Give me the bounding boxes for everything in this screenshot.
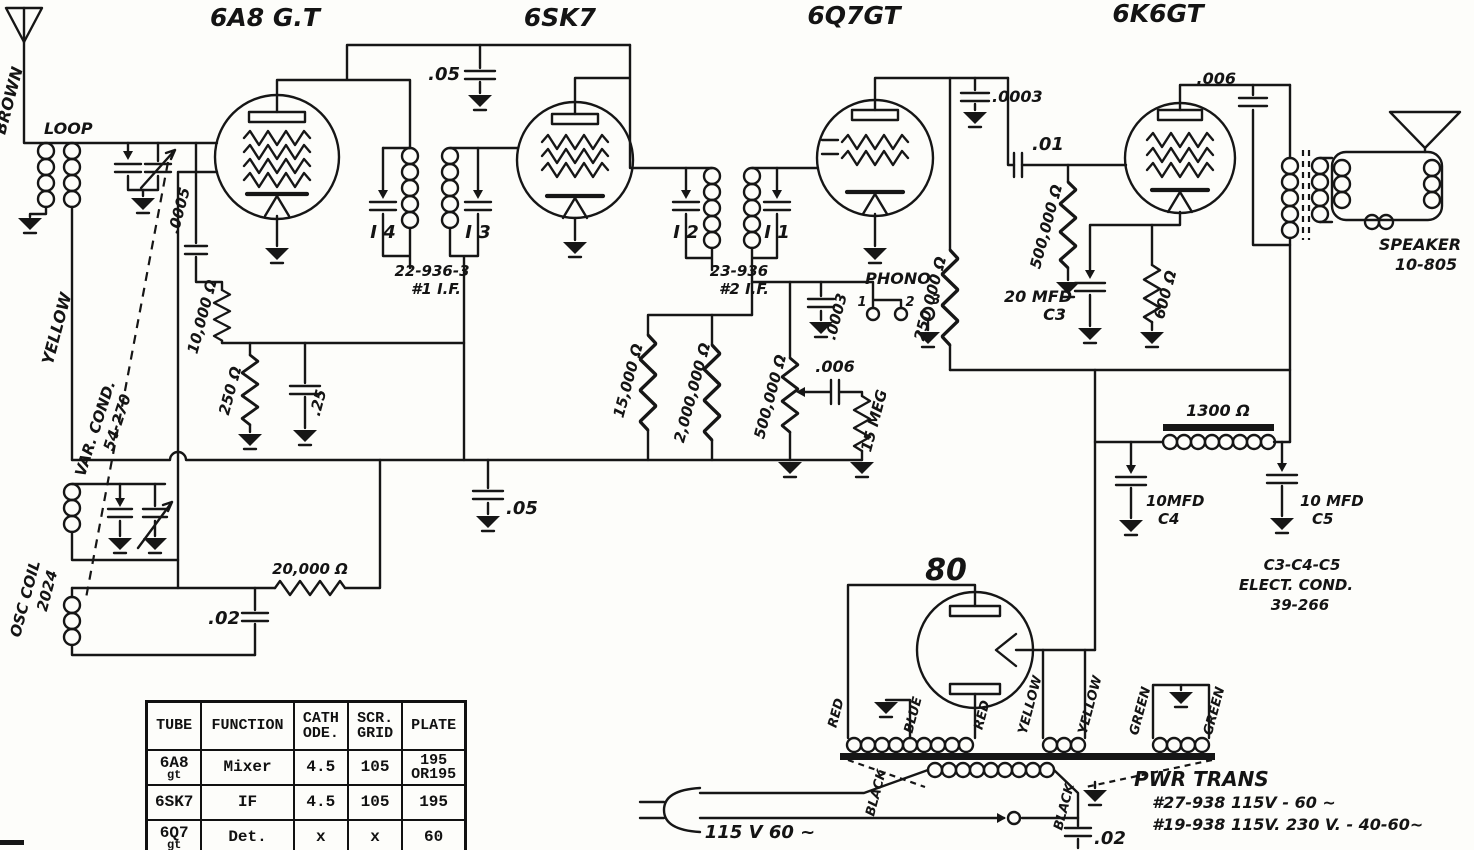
label-res-600: 600 Ω — [1150, 268, 1180, 321]
plate-bypass-cap — [961, 78, 989, 127]
cell-screen: x — [348, 820, 402, 850]
avc-network — [222, 343, 464, 449]
label-c4-value: 10MFD — [1146, 492, 1205, 510]
label-elect-1: C3-C4-C5 — [1264, 556, 1341, 574]
label-tube-6sk7: 6SK7 — [524, 3, 597, 32]
table-row-6sk7: 6SK7 IF 4.5 105 195 — [147, 785, 466, 820]
label-res-10k: 10,000 Ω — [184, 278, 221, 356]
schematic-page: 6A8 G.T 6SK7 6Q7GT 6K6GT 80 BROWN LOOP Y… — [0, 0, 1474, 850]
tube-6k6 — [1075, 85, 1290, 347]
chassis-bus — [72, 452, 862, 531]
label-yellow-lead: YELLOW — [38, 289, 76, 366]
choke-core — [1163, 424, 1274, 431]
label-pwr-trans: PWR TRANS — [1134, 767, 1269, 791]
label-res-20k: 20,000 Ω — [272, 560, 348, 578]
label-cap-20mfd: 20 MFD — [1004, 287, 1072, 306]
header-cathode: CATHODE. — [294, 702, 348, 751]
tube-6q7 — [817, 78, 1008, 263]
label-cap-05-mid: .05 — [506, 498, 538, 519]
cell-cathode: x — [294, 820, 348, 850]
label-res-500k-grid: 500,000 Ω — [1026, 182, 1066, 270]
cell-tube: 6Q7gt — [147, 820, 202, 850]
label-lead-green-2: GREEN — [1201, 685, 1228, 737]
cell-function: Det. — [201, 820, 293, 850]
if-transformer-2 — [640, 168, 818, 460]
header-tube: TUBE — [147, 702, 202, 751]
antenna — [6, 8, 217, 143]
output-transformer — [1282, 85, 1332, 442]
tube-voltage-table: TUBE FUNCTION CATHODE. SCR.GRID PLATE 6A… — [145, 700, 467, 850]
label-speaker-2: 10-805 — [1395, 255, 1457, 274]
label-jack-2: 2 — [905, 295, 914, 310]
header-screen-grid: SCR.GRID — [348, 702, 402, 751]
label-tube-6q7: 6Q7GT — [807, 1, 902, 30]
label-trimmer-i2: I 2 — [673, 222, 699, 243]
table-row-6q7: 6Q7gt Det. x x 60 — [147, 820, 466, 850]
label-phono: PHONO — [865, 269, 931, 288]
power-transformer — [700, 650, 1215, 826]
cell-function: IF — [201, 785, 293, 820]
label-cap-01: .01 — [1032, 134, 1064, 155]
header-function: FUNCTION — [201, 702, 293, 751]
label-cap-20mfd-name: C3 — [1043, 305, 1066, 324]
plate-load-resistor — [942, 78, 958, 370]
label-cap-006-plate: .006 — [1197, 69, 1236, 88]
speaker — [1332, 112, 1460, 229]
label-trimmer-i1: I 1 — [764, 222, 790, 243]
label-res-250k: 250,000 Ω — [910, 254, 950, 342]
cell-screen: 105 — [348, 750, 402, 785]
label-cap-05-top: .05 — [428, 64, 460, 85]
label-if1-name: #1 I.F. — [411, 280, 461, 298]
label-if2-part: 23-936 — [710, 262, 768, 280]
if-transformer-1 — [370, 148, 518, 460]
label-pwr-60hz: #27-938 115V - 60 ~ — [1152, 793, 1336, 812]
label-speaker-1: SPEAKER — [1379, 235, 1461, 254]
cell-cathode: 4.5 — [294, 750, 348, 785]
label-c4-name: C4 — [1158, 510, 1179, 528]
label-lead-yellow-1: YELLOW — [1016, 674, 1046, 736]
label-c5-value: 10 MFD — [1300, 492, 1364, 510]
label-ac-line: 115 V 60 ~ — [705, 822, 815, 843]
table-header-row: TUBE FUNCTION CATHODE. SCR.GRID PLATE — [147, 702, 466, 751]
cell-plate: 60 — [402, 820, 465, 850]
label-cap-006-audio: .006 — [815, 357, 854, 376]
cell-plate: 195OR195 — [402, 750, 465, 785]
label-elect-2: ELECT. COND. — [1239, 576, 1353, 594]
label-pwr-230v: #19-938 115V. 230 V. - 40-60~ — [1152, 815, 1423, 834]
label-tube-6a8: 6A8 G.T — [210, 3, 322, 32]
label-lead-yellow-2: YELLOW — [1076, 674, 1106, 736]
label-loop: LOOP — [44, 119, 93, 138]
label-if2-name: #2 I.F. — [719, 280, 769, 298]
header-plate: PLATE — [402, 702, 465, 751]
label-trimmer-i3: I 3 — [465, 222, 491, 243]
label-res-250: 250 Ω — [215, 364, 245, 417]
rf-tuning-cap — [86, 143, 175, 598]
label-cap-02-line: .02 — [1094, 828, 1126, 849]
label-lead-green-1: GREEN — [1127, 685, 1154, 737]
label-tube-80: 80 — [925, 553, 967, 588]
scan-artifact — [0, 840, 24, 845]
cell-screen: 105 — [348, 785, 402, 820]
label-lead-black-2: BLACK — [1051, 781, 1078, 832]
transformer-core — [840, 753, 1215, 760]
tube-6a8 — [178, 45, 630, 588]
label-if1-part: 22-936-3 — [394, 262, 469, 280]
cell-function: Mixer — [201, 750, 293, 785]
label-jack-1: 1 — [857, 295, 866, 310]
coupling-cap-grid — [1008, 78, 1126, 297]
table-row-6a8: 6A8gt Mixer 4.5 105 195OR195 — [147, 750, 466, 785]
label-elect-3: 39-266 — [1271, 596, 1329, 614]
cell-tube: 6SK7 — [147, 785, 202, 820]
label-tube-6k6: 6K6GT — [1112, 0, 1205, 28]
label-c5-name: C5 — [1312, 510, 1333, 528]
cell-plate: 195 — [402, 785, 465, 820]
screen-bypass-cap — [465, 45, 495, 110]
label-choke-1300: 1300 Ω — [1186, 401, 1250, 420]
cell-cathode: 4.5 — [294, 785, 348, 820]
label-cap-0003-plate: .0003 — [992, 87, 1043, 106]
label-trimmer-i4: I 4 — [370, 222, 396, 243]
label-cap-0005: .0005 — [164, 185, 194, 235]
osc-section — [64, 484, 255, 655]
cell-tube: 6A8gt — [147, 750, 202, 785]
label-cap-25: .25 — [306, 388, 330, 418]
rectifier-tube-80 — [848, 585, 1095, 738]
label-res-15k: 15,000 Ω — [610, 342, 647, 420]
label-cap-02-osc: .02 — [208, 608, 240, 629]
ac-plug — [640, 788, 700, 832]
label-lead-red-1: RED — [826, 697, 848, 730]
